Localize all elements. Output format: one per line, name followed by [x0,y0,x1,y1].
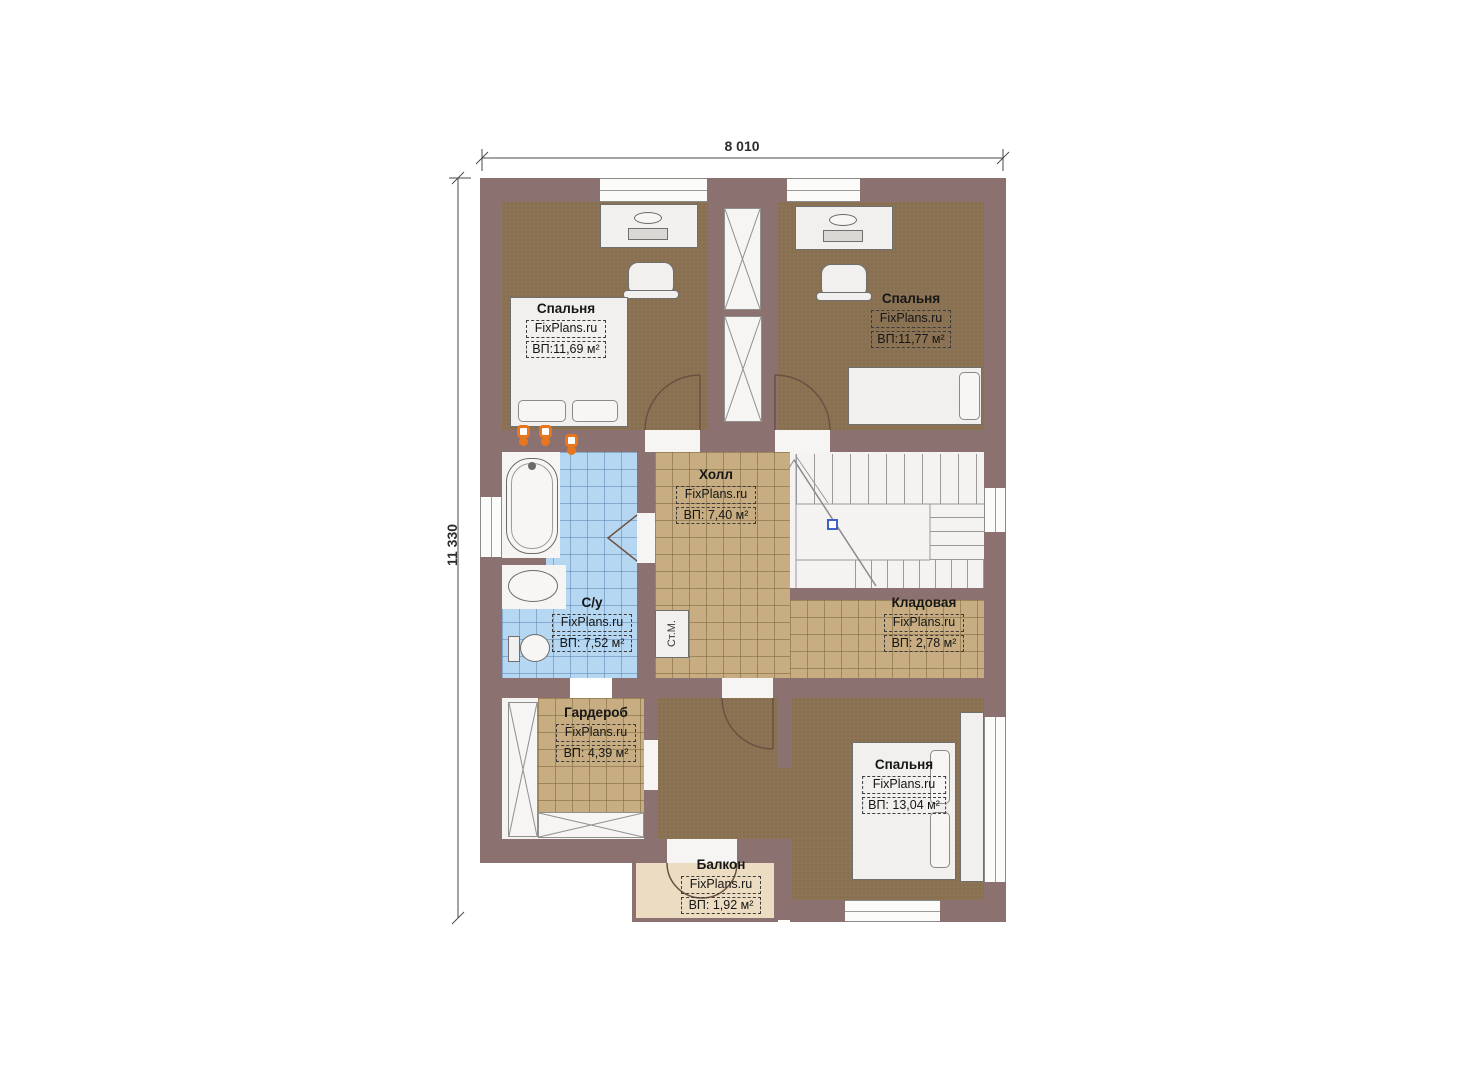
room-brand: FixPlans.ru [552,614,632,632]
desk-lamp-icon [829,214,857,226]
wall-lamp-icon [538,425,553,448]
room-label-bedroom-top-left: Спальня FixPlans.ru ВП:11,69 м² [526,302,606,358]
room-brand: FixPlans.ru [884,614,964,632]
door-wardrobe [644,740,658,790]
room-area: ВП:11,69 м² [526,341,606,359]
room-area: ВП: 1,92 м² [681,897,761,915]
room-label-bedroom-bottom: Спальня FixPlans.ru ВП: 13,04 м² [862,758,946,814]
room-brand: FixPlans.ru [556,724,636,742]
room-title: Кладовая [884,596,964,611]
pillow [930,812,950,868]
room-title: Гардероб [556,706,636,721]
wall-corridor-2 [612,678,722,698]
room-title: Холл [676,468,756,483]
door-bedroom-top-right [775,430,830,452]
toilet-icon [520,634,550,662]
wardrobe-shelf-left [508,702,538,837]
room-label-hall: Холл FixPlans.ru ВП: 7,40 м² [676,468,756,524]
room-title: Спальня [862,758,946,773]
room-title: Балкон [681,858,761,873]
stair-flight-right [930,504,984,560]
window-bedroom-top-right [787,178,860,202]
floor-plan-page: 8 010 11 330 [0,0,1474,1080]
closet-icon [960,712,984,882]
room-label-bedroom-top-right: Спальня FixPlans.ru ВП:11,77 м² [871,292,951,348]
window-stairs [984,488,1006,532]
desk-lamp-icon [634,212,662,224]
office-chair-back-icon [816,292,872,301]
room-brand: FixPlans.ru [862,776,946,794]
room-label-balcony: Балкон FixPlans.ru ВП: 1,92 м² [681,858,761,914]
wall-corridor-3 [773,678,984,698]
window-bedroom-bottom-right [984,717,1006,882]
desk-icon [600,204,698,248]
wall-bottom-right-2 [940,900,984,922]
stair-flight-bottom [855,560,984,588]
sink-icon [508,570,558,602]
window-bedroom-top-left [600,178,707,202]
desk-icon [795,206,893,250]
wall-wardrobe-1 [644,698,658,740]
wardrobe-shelf-bottom [538,812,644,838]
door-bathroom [637,513,655,563]
washing-machine: Ст.М. [655,610,689,658]
room-area: ВП: 4,39 м² [556,745,636,763]
room-title: Спальня [871,292,951,307]
pillow [572,400,618,422]
room-brand: FixPlans.ru [681,876,761,894]
wall-corridor-1 [502,678,570,698]
wall-bedroom-bottom-stub [778,698,792,768]
wall-bottom-left [502,839,667,863]
wall-bedrooms-hall-2 [700,430,775,452]
keyboard-icon [628,228,668,240]
room-title: С/у [552,596,632,611]
pillow [959,372,980,420]
wall-bathroom-hall-1 [637,452,655,513]
faucet-icon [528,462,536,470]
room-label-storage: Кладовая FixPlans.ru ВП: 2,78 м² [884,596,964,652]
door-bedroom-bottom [722,678,773,698]
washing-machine-label: Ст.М. [666,620,678,647]
wall-lamp-icon [516,425,531,448]
room-label-wardrobe: Гардероб FixPlans.ru ВП: 4,39 м² [556,706,636,762]
room-brand: FixPlans.ru [676,486,756,504]
office-chair-back-icon [623,290,679,299]
floor-plan: Ст.М. [478,172,1008,922]
vent-shaft-2 [724,316,762,422]
bathtub-icon [506,458,558,554]
room-area: ВП: 7,40 м² [676,507,756,525]
room-brand: FixPlans.ru [871,310,951,328]
wall-lamp-icon [564,434,579,457]
keyboard-icon [823,230,863,242]
room-area: ВП: 7,52 м² [552,635,632,653]
room-area: ВП: 2,78 м² [884,635,964,653]
window-bedroom-bottom [845,900,940,922]
room-brand: FixPlans.ru [526,320,606,338]
door-bedroom-top-left [645,430,700,452]
wall-wardrobe-2 [644,790,658,839]
dimension-height-label: 11 330 [444,524,460,566]
vent-shaft-1 [724,208,761,310]
wall-bathroom-hall-2 [637,563,655,678]
stair-flight-top [796,454,984,504]
wall-bedrooms-hall-3 [830,430,984,452]
room-area: ВП: 13,04 м² [862,797,946,815]
room-title: Спальня [526,302,606,317]
wall-top [480,178,1006,202]
pillow [518,400,566,422]
toilet-tank-icon [508,636,520,662]
wall-bottom-right-1 [790,900,845,922]
dimension-width-label: 8 010 [724,138,759,154]
room-label-bathroom: С/у FixPlans.ru ВП: 7,52 м² [552,596,632,652]
window-bathroom [480,497,502,557]
room-area: ВП:11,77 м² [871,331,951,349]
